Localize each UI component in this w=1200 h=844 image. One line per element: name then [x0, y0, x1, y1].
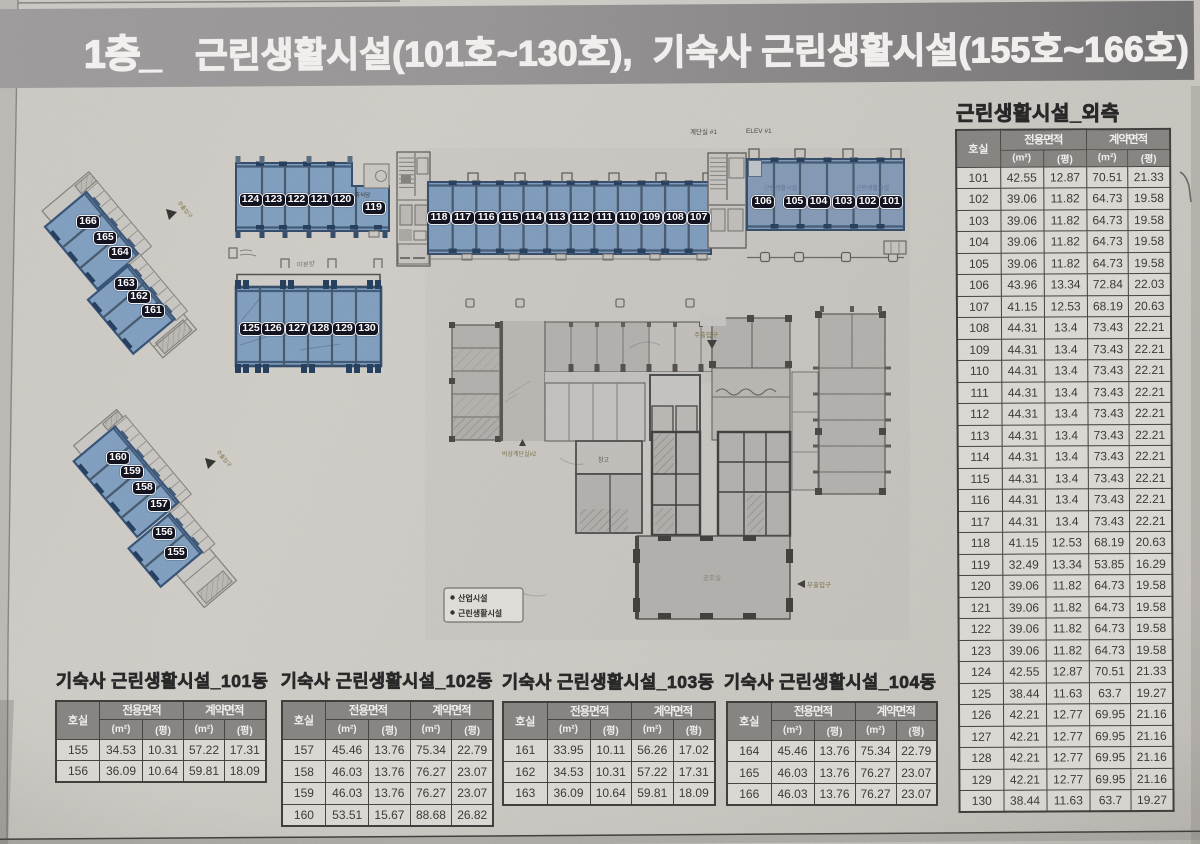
svg-text:산업시설: 산업시설 — [458, 593, 487, 603]
svg-text:근린생활시설: 근린생활시설 — [458, 608, 502, 618]
